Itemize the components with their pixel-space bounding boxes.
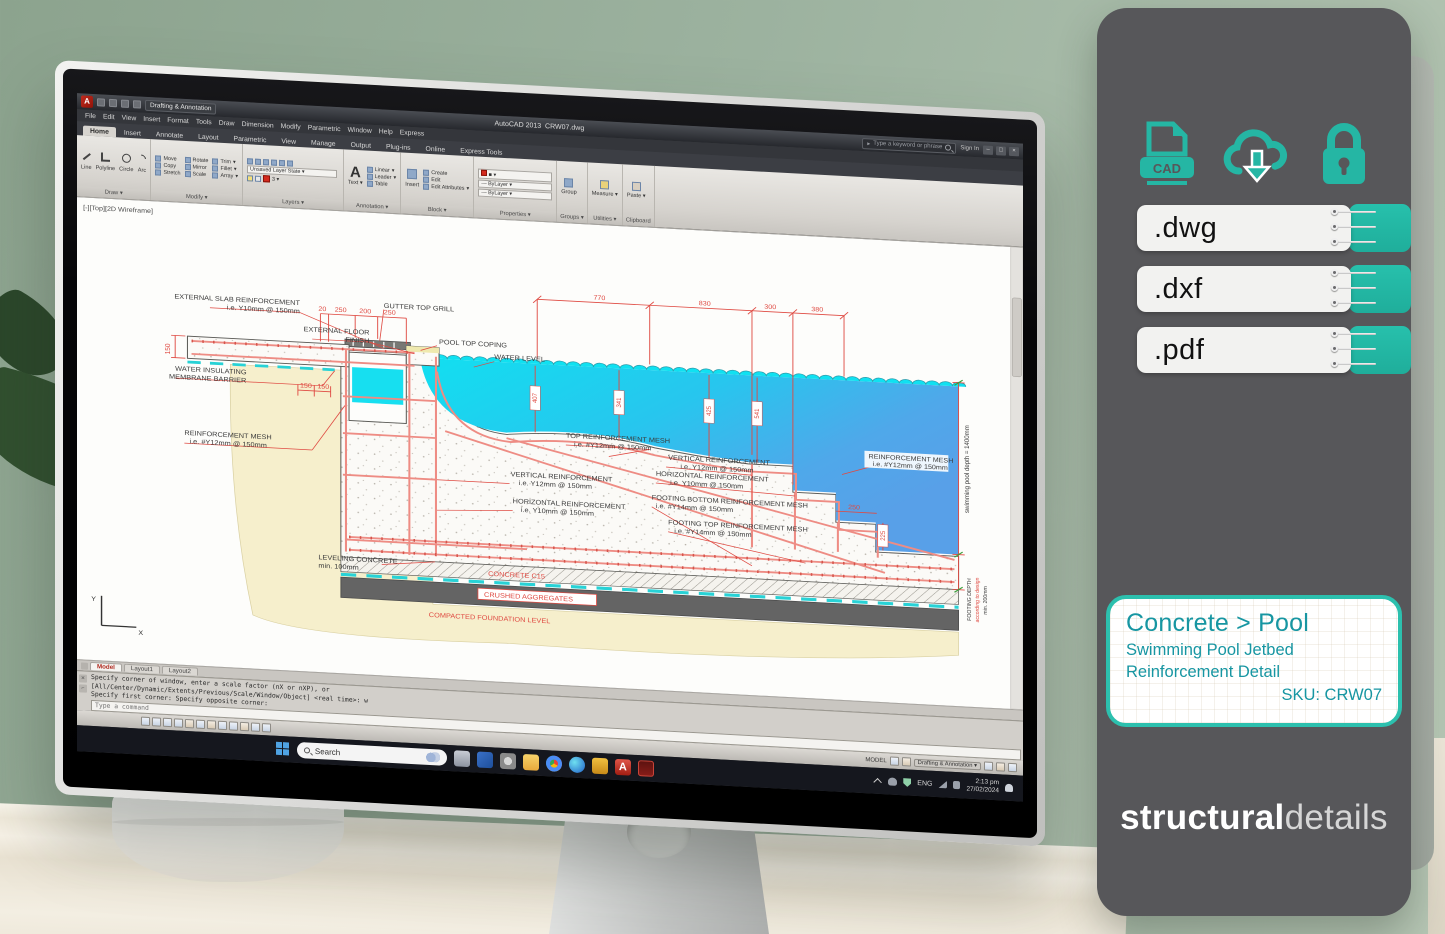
clean-screen-icon[interactable] bbox=[1008, 763, 1017, 772]
dim: 407 bbox=[532, 392, 539, 403]
viewport-maximize-icon[interactable] bbox=[890, 756, 899, 765]
tray-cloud-icon[interactable] bbox=[888, 777, 897, 785]
tool-rotate[interactable]: Rotate bbox=[185, 156, 209, 163]
pdf-download-button[interactable]: .pdf bbox=[1137, 327, 1351, 373]
product-category[interactable]: Concrete > Pool bbox=[1126, 609, 1382, 638]
dim: 770 bbox=[593, 295, 605, 302]
lock-icon bbox=[1317, 120, 1371, 190]
dim: 380 bbox=[811, 306, 823, 313]
close-button[interactable]: × bbox=[1009, 146, 1019, 156]
drawing-canvas[interactable]: 770 830 300 380 20 250 200 250 150 150 1… bbox=[77, 197, 1023, 709]
product-title-line2: Reinforcement Detail bbox=[1126, 663, 1382, 682]
search-caret: ▸ bbox=[867, 140, 870, 147]
binder-rings bbox=[1331, 209, 1379, 247]
monitor: A Drafting & Annotation AutoCAD 2013 CRW… bbox=[55, 60, 1045, 847]
tool-trim[interactable]: Trim ▾ bbox=[212, 158, 235, 165]
binder-rings bbox=[1331, 270, 1379, 308]
chrome-icon[interactable] bbox=[546, 755, 562, 772]
dim: 250 bbox=[384, 309, 396, 316]
quick-access-icon[interactable] bbox=[109, 99, 117, 107]
screen: A Drafting & Annotation AutoCAD 2013 CRW… bbox=[77, 93, 1023, 801]
panel-label-groups[interactable]: Groups ▾ bbox=[557, 212, 587, 224]
menu-edit[interactable]: Edit bbox=[103, 113, 115, 121]
customize-command-icon[interactable]: ⌐ bbox=[79, 684, 87, 692]
workspace-switcher[interactable]: Drafting & Annotation bbox=[145, 99, 216, 114]
menu-window[interactable]: Window bbox=[348, 126, 372, 134]
volume-icon[interactable] bbox=[953, 781, 960, 789]
lock-ui-icon[interactable] bbox=[984, 761, 993, 770]
panel-properties: ■ ▾ — ByLayer ▾ — ByLayer ▾ Properties ▾ bbox=[474, 156, 557, 221]
dynamic-ucs-icon[interactable] bbox=[218, 721, 227, 730]
menu-tools[interactable]: Tools bbox=[196, 118, 212, 126]
panel-groups: Group Groups ▾ bbox=[557, 161, 588, 224]
tool-polyline[interactable]: Polyline bbox=[96, 153, 116, 172]
isolate-objects-icon[interactable] bbox=[996, 762, 1005, 771]
file-explorer-icon[interactable] bbox=[523, 754, 539, 771]
autocad-logo-icon[interactable]: A bbox=[81, 95, 93, 108]
product-card: Concrete > Pool Swimming Pool Jetbed Rei… bbox=[1106, 595, 1402, 727]
drawing-label: FINISH bbox=[345, 337, 369, 345]
dim: 425 bbox=[706, 405, 713, 416]
menu-dimension[interactable]: Dimension bbox=[242, 120, 274, 129]
drawing-label: FOOTING DEPTH bbox=[967, 578, 973, 621]
svg-text:CAD: CAD bbox=[1153, 161, 1181, 176]
panel-modify: Move Copy Stretch Rotate Mirror Scale Tr… bbox=[151, 139, 243, 205]
quick-properties-icon[interactable] bbox=[262, 723, 271, 732]
polar-tracking-icon[interactable] bbox=[185, 719, 194, 728]
onedrive-icon[interactable] bbox=[454, 750, 470, 767]
format-row-dxf[interactable]: .dxf bbox=[1097, 265, 1411, 313]
edge-icon[interactable] bbox=[569, 756, 585, 773]
tool-line[interactable]: Line bbox=[81, 152, 92, 171]
dim: 250 bbox=[335, 307, 347, 314]
quick-access-icon[interactable] bbox=[97, 98, 105, 106]
close-command-icon[interactable]: ✕ bbox=[79, 674, 87, 682]
cloud-download-icon bbox=[1221, 125, 1293, 185]
autocad-taskbar-icon[interactable]: A bbox=[615, 759, 631, 776]
tool-move[interactable]: Move bbox=[155, 155, 176, 162]
outlook-icon[interactable] bbox=[477, 751, 493, 768]
tool-edit-block[interactable]: Edit bbox=[423, 176, 440, 183]
dim: 541 bbox=[754, 408, 761, 419]
product-title-line1: Swimming Pool Jetbed bbox=[1126, 641, 1382, 660]
tool-array[interactable]: Array ▾ bbox=[212, 172, 238, 179]
window-controls: – □ × bbox=[983, 145, 1019, 156]
monitor-bezel: A Drafting & Annotation AutoCAD 2013 CRW… bbox=[63, 68, 1037, 838]
tool-stretch[interactable]: Stretch bbox=[155, 169, 180, 176]
panel-draw: Line Polyline Circle Arc Draw ▾ bbox=[77, 135, 151, 200]
tool-arc[interactable]: Arc bbox=[137, 155, 146, 174]
start-button[interactable] bbox=[276, 742, 290, 757]
tab-nav-icon[interactable] bbox=[81, 662, 88, 669]
menu-format[interactable]: Format bbox=[167, 116, 189, 124]
pool-section-drawing: 770 830 300 380 20 250 200 250 150 150 1… bbox=[77, 197, 1023, 709]
quick-access-icon[interactable] bbox=[121, 100, 129, 108]
product-sku: SKU: CRW07 bbox=[1126, 686, 1382, 705]
tool-paste[interactable]: Paste ▾ bbox=[627, 181, 646, 199]
dim: 20 bbox=[318, 306, 326, 313]
panel-utilities: Measure ▾ Utilities ▾ bbox=[588, 162, 623, 225]
drawing-label: EXTERNAL FLOOR bbox=[304, 326, 370, 336]
app-icon[interactable] bbox=[592, 758, 608, 775]
notification-bell-icon[interactable] bbox=[1005, 784, 1013, 792]
monitor-stand bbox=[542, 818, 776, 934]
dim: 225 bbox=[880, 530, 887, 541]
transparency-icon[interactable] bbox=[251, 722, 260, 731]
drawing-label: according to design bbox=[975, 577, 981, 622]
dim: 150 bbox=[300, 383, 312, 390]
tool-table[interactable]: Table bbox=[367, 180, 388, 187]
panel-annotation: AText ▾ Linear ▾ Leader ▾ Table Annotati… bbox=[344, 149, 401, 213]
tab-model[interactable]: Model bbox=[90, 662, 122, 672]
taskbar-search[interactable]: Search bbox=[297, 742, 447, 766]
layer-color[interactable]: 3 ▾ bbox=[247, 174, 279, 183]
annotation-scale-icon[interactable] bbox=[902, 757, 911, 766]
drawing-label: POOL TOP COPING bbox=[439, 339, 507, 349]
dim: 150 bbox=[165, 343, 172, 354]
adobe-icon[interactable] bbox=[638, 760, 654, 777]
snap-mode-icon[interactable] bbox=[152, 717, 161, 726]
tool-scale[interactable]: Scale bbox=[185, 170, 207, 177]
tool-edit-attributes[interactable]: Edit Attributes ▾ bbox=[423, 183, 469, 191]
drawing-label: min. 200mm bbox=[983, 586, 989, 615]
menu-modify[interactable]: Modify bbox=[281, 123, 301, 131]
tool-insert-block[interactable]: Insert bbox=[405, 169, 419, 188]
dim: 250 bbox=[848, 504, 860, 511]
dim: 341 bbox=[616, 397, 623, 408]
menu-parametric[interactable]: Parametric bbox=[308, 124, 341, 133]
workspace-status[interactable]: Drafting & Annotation ▾ bbox=[914, 758, 981, 770]
binder-rings bbox=[1331, 331, 1379, 369]
download-panel: CAD .dwg .dxf bbox=[1097, 8, 1411, 916]
tool-group[interactable]: Group bbox=[561, 178, 577, 196]
search-icon bbox=[304, 747, 310, 753]
model-space-indicator[interactable]: MODEL bbox=[865, 757, 886, 764]
dim: 830 bbox=[699, 300, 711, 307]
format-row-pdf[interactable]: .pdf bbox=[1097, 326, 1411, 374]
menu-draw[interactable]: Draw bbox=[219, 119, 235, 127]
dim: 200 bbox=[359, 308, 371, 315]
dynamic-input-icon[interactable] bbox=[229, 721, 238, 730]
tool-copy[interactable]: Copy bbox=[155, 162, 176, 169]
lineweight-display-icon[interactable] bbox=[240, 722, 249, 731]
menu-express[interactable]: Express bbox=[400, 129, 425, 137]
format-row-dwg[interactable]: .dwg bbox=[1097, 204, 1411, 252]
ucs-y-axis: Y bbox=[91, 596, 96, 603]
maximize-button[interactable]: □ bbox=[996, 146, 1006, 156]
grid-display-icon[interactable] bbox=[163, 718, 172, 727]
tray-expand-icon[interactable] bbox=[874, 778, 882, 786]
scrollbar-thumb[interactable] bbox=[1012, 298, 1021, 377]
panel-label-clipboard[interactable]: Clipboard bbox=[623, 215, 654, 227]
language-indicator[interactable]: ENG bbox=[917, 779, 932, 787]
menu-help[interactable]: Help bbox=[379, 128, 393, 136]
menu-insert[interactable]: Insert bbox=[143, 115, 160, 123]
dim: 300 bbox=[764, 304, 776, 311]
object-snap-icon[interactable] bbox=[196, 720, 205, 729]
panel-clipboard: Paste ▾ Clipboard bbox=[623, 164, 655, 227]
security-shield-icon[interactable] bbox=[903, 778, 911, 787]
panel-label-utilities[interactable]: Utilities ▾ bbox=[588, 213, 622, 225]
tool-measure[interactable]: Measure ▾ bbox=[592, 179, 618, 198]
object-snap-tracking-icon[interactable] bbox=[207, 720, 216, 729]
panel-layers: Unsaved Layer State ▾ 3 ▾ Layers ▾ bbox=[243, 144, 344, 210]
tool-circle[interactable]: Circle bbox=[119, 154, 133, 173]
sign-in[interactable]: Sign In bbox=[960, 145, 979, 152]
minimize-button[interactable]: – bbox=[983, 145, 993, 155]
brand-logo: structuraldetails bbox=[1097, 798, 1411, 838]
tool-mirror[interactable]: Mirror bbox=[185, 163, 207, 170]
quick-access-icon[interactable] bbox=[133, 100, 141, 108]
settings-icon[interactable] bbox=[500, 753, 516, 770]
menu-view[interactable]: View bbox=[122, 114, 137, 122]
menu-file[interactable]: File bbox=[85, 112, 96, 120]
ucs-x-axis: X bbox=[138, 630, 143, 637]
dwg-download-button[interactable]: .dwg bbox=[1137, 205, 1351, 251]
taskbar-clock[interactable]: 2:13 pm 27/02/2024 bbox=[966, 778, 999, 795]
weather-icon bbox=[426, 752, 440, 763]
cad-file-icon: CAD bbox=[1137, 121, 1197, 189]
tool-fillet[interactable]: Fillet ▾ bbox=[212, 165, 236, 172]
dxf-download-button[interactable]: .dxf bbox=[1137, 266, 1351, 312]
network-icon[interactable] bbox=[938, 780, 947, 788]
viewport-controls[interactable]: [-][Top][2D Wireframe] bbox=[83, 205, 153, 215]
feature-icons: CAD bbox=[1097, 120, 1411, 190]
dim: 150 bbox=[317, 384, 329, 391]
search-icon[interactable] bbox=[945, 144, 951, 150]
panel-block: Insert Create Edit Edit Attributes ▾ Blo… bbox=[401, 152, 474, 217]
infer-constraints-icon[interactable] bbox=[141, 717, 150, 726]
drawing-label: swimming pool depth = 1400mm bbox=[964, 425, 971, 513]
tool-text[interactable]: AText ▾ bbox=[348, 165, 363, 187]
ortho-mode-icon[interactable] bbox=[174, 718, 183, 727]
